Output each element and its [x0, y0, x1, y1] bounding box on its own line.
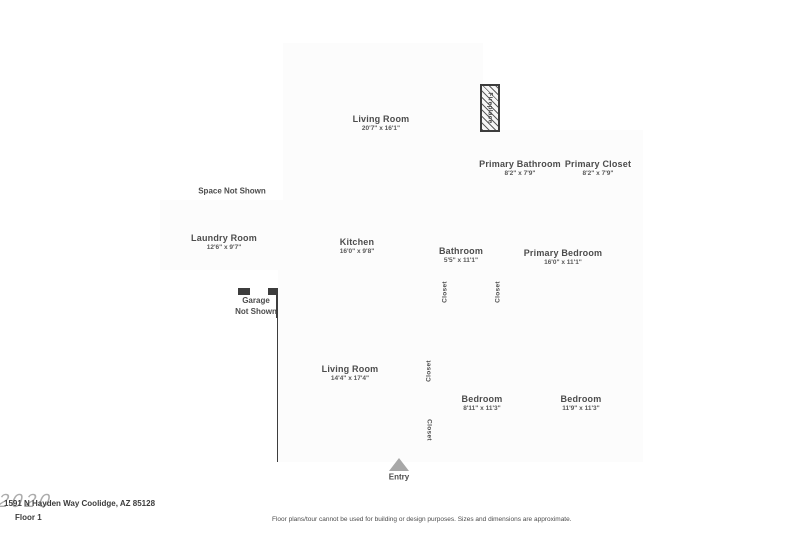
garage-line-1: Garage [235, 295, 277, 306]
room-name: Living Room [353, 114, 410, 124]
room-name: Kitchen [340, 237, 375, 247]
space-not-shown-label: Space Not Shown [198, 186, 266, 197]
room-dims: 8'2" x 7'9" [565, 170, 631, 177]
room-dims: 12'6" x 9'7" [191, 244, 257, 251]
fireplace-label: Fireplace [487, 92, 494, 123]
room-dims: 11'9" x 11'3" [561, 405, 602, 412]
room-label-kitchen: Kitchen 16'0" x 9'8" [340, 237, 375, 255]
room-name: Primary Closet [565, 159, 631, 169]
room-label-bedroom-1: Bedroom 8'11" x 11'3" [462, 394, 503, 412]
room-label-living-room-lower: Living Room 14'4" x 17'4" [322, 364, 379, 382]
room-name: Bedroom [561, 394, 602, 404]
room-dims: 16'0" x 11'1" [524, 259, 603, 266]
room-dims: 8'2" x 7'9" [479, 170, 561, 177]
room-name: Laundry Room [191, 233, 257, 243]
room-dims: 16'0" x 9'8" [340, 248, 375, 255]
room-name: Bedroom [462, 394, 503, 404]
room-label-bedroom-2: Bedroom 11'9" x 11'3" [561, 394, 602, 412]
closet-label-hall-lower: Closet [426, 419, 433, 441]
room-label-living-room-upper: Living Room 20'7" x 16'1" [353, 114, 410, 132]
room-label-primary-bedroom: Primary Bedroom 16'0" x 11'1" [524, 248, 603, 266]
room-dims: 14'4" x 17'4" [322, 375, 379, 382]
room-label-primary-bathroom: Primary Bathroom 8'2" x 7'9" [479, 159, 561, 177]
floor-area [278, 200, 643, 462]
garage-line-2: Not Shown [235, 306, 277, 317]
room-dims: 5'5" x 11'1" [439, 257, 483, 264]
garage-not-shown-label: Garage Not Shown [235, 295, 277, 317]
entry-label: Entry [389, 472, 409, 483]
closet-label-primary: Closet [495, 281, 502, 303]
floor-plan-page: Fireplace Living Room 20'7" x 16'1" Prim… [0, 0, 800, 533]
room-name: Primary Bedroom [524, 248, 603, 258]
floor-number-label: Floor 1 [15, 513, 42, 522]
wall-segment [238, 288, 250, 295]
room-dims: 20'7" x 16'1" [353, 125, 410, 132]
closet-label-bathroom: Closet [442, 281, 449, 303]
address-text: 1591 N Hayden Way Coolidge, AZ 85128 [4, 499, 155, 508]
room-dims: 8'11" x 11'3" [462, 405, 503, 412]
disclaimer-text: Floor plans/tour cannot be used for buil… [272, 516, 572, 523]
entry-arrow-icon [389, 458, 409, 471]
room-label-bathroom: Bathroom 5'5" x 11'1" [439, 246, 483, 264]
room-label-laundry-room: Laundry Room 12'6" x 9'7" [191, 233, 257, 251]
closet-label-hall-upper: Closet [426, 360, 433, 382]
room-name: Primary Bathroom [479, 159, 561, 169]
room-name: Bathroom [439, 246, 483, 256]
room-name: Living Room [322, 364, 379, 374]
room-label-primary-closet: Primary Closet 8'2" x 7'9" [565, 159, 631, 177]
